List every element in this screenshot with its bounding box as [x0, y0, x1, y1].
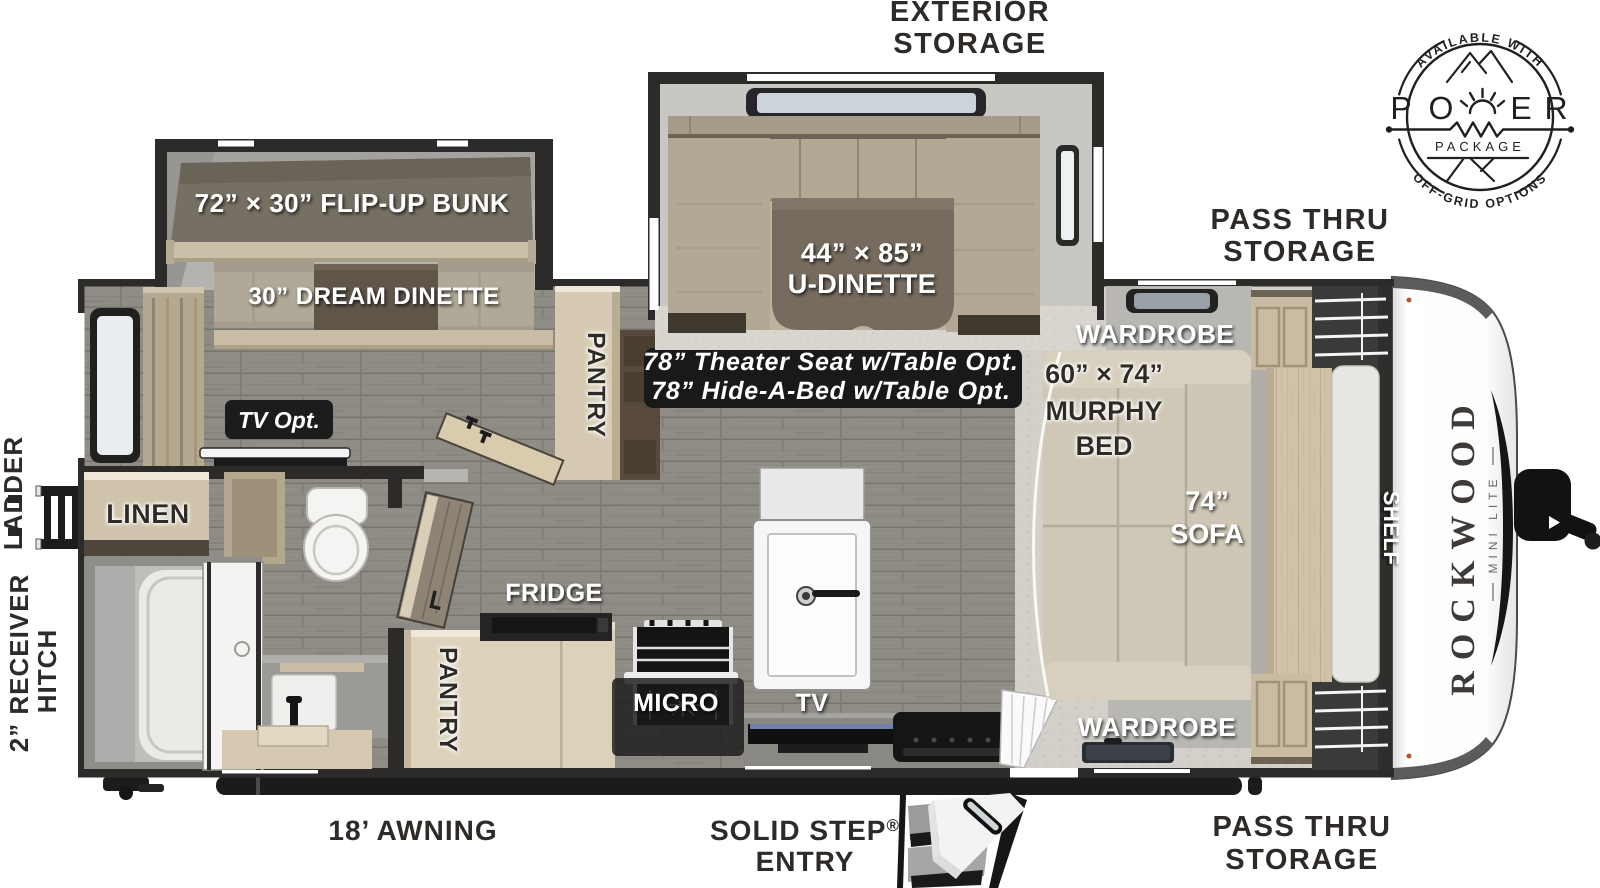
svg-text:SHELF: SHELF — [1379, 491, 1404, 566]
svg-text:44” × 85”: 44” × 85” — [801, 238, 923, 268]
svg-text:18’ AWNING: 18’ AWNING — [328, 815, 497, 846]
svg-text:STORAGE: STORAGE — [893, 28, 1046, 60]
svg-text:78” Hide-A-Bed w/Table Opt.: 78” Hide-A-Bed w/Table Opt. — [651, 377, 1011, 405]
svg-text:MURPHY: MURPHY — [1045, 396, 1162, 426]
svg-text:STORAGE: STORAGE — [1223, 236, 1376, 268]
svg-text:MICRO: MICRO — [633, 689, 719, 717]
svg-text:PASS THRU: PASS THRU — [1211, 204, 1390, 236]
svg-text:PACKAGE: PACKAGE — [1435, 139, 1525, 154]
svg-text:TV: TV — [796, 689, 829, 717]
svg-text:E: E — [1510, 90, 1531, 126]
svg-text:R: R — [1544, 90, 1567, 126]
svg-text:LINEN: LINEN — [106, 499, 190, 529]
svg-text:SOFA: SOFA — [1170, 519, 1244, 549]
svg-text:P: P — [1390, 90, 1411, 126]
svg-text:2” RECEIVER: 2” RECEIVER — [4, 574, 34, 753]
svg-text:PANTRY: PANTRY — [434, 647, 462, 753]
svg-text:WARDROBE: WARDROBE — [1076, 319, 1235, 349]
svg-text:U-DINETTE: U-DINETTE — [788, 269, 937, 299]
svg-text:78” Theater Seat w/Table Opt.: 78” Theater Seat w/Table Opt. — [643, 348, 1018, 376]
svg-text:BED: BED — [1075, 431, 1132, 461]
svg-text:SOLID STEP®︎: SOLID STEP®︎ — [710, 815, 900, 846]
svg-text:MINI LITE: MINI LITE — [1486, 474, 1500, 573]
svg-text:EXTERIOR: EXTERIOR — [890, 0, 1050, 28]
svg-text:ROCKWOOD: ROCKWOOD — [1445, 394, 1482, 695]
svg-text:30” DREAM DINETTE: 30” DREAM DINETTE — [248, 283, 499, 310]
svg-text:74”: 74” — [1185, 486, 1229, 516]
svg-text:ENTRY: ENTRY — [756, 846, 855, 877]
svg-text:HITCH: HITCH — [32, 629, 62, 713]
svg-text:WARDROBE: WARDROBE — [1078, 712, 1237, 742]
svg-text:PANTRY: PANTRY — [582, 332, 610, 438]
svg-text:O: O — [1429, 90, 1454, 126]
svg-text:72” × 30” FLIP-UP BUNK: 72” × 30” FLIP-UP BUNK — [195, 188, 510, 218]
svg-text:TV Opt.: TV Opt. — [238, 407, 320, 433]
svg-text:STORAGE: STORAGE — [1225, 844, 1378, 876]
svg-text:FRIDGE: FRIDGE — [505, 579, 602, 607]
svg-text:60” × 74”: 60” × 74” — [1045, 359, 1163, 389]
svg-text:PASS THRU: PASS THRU — [1213, 811, 1392, 843]
